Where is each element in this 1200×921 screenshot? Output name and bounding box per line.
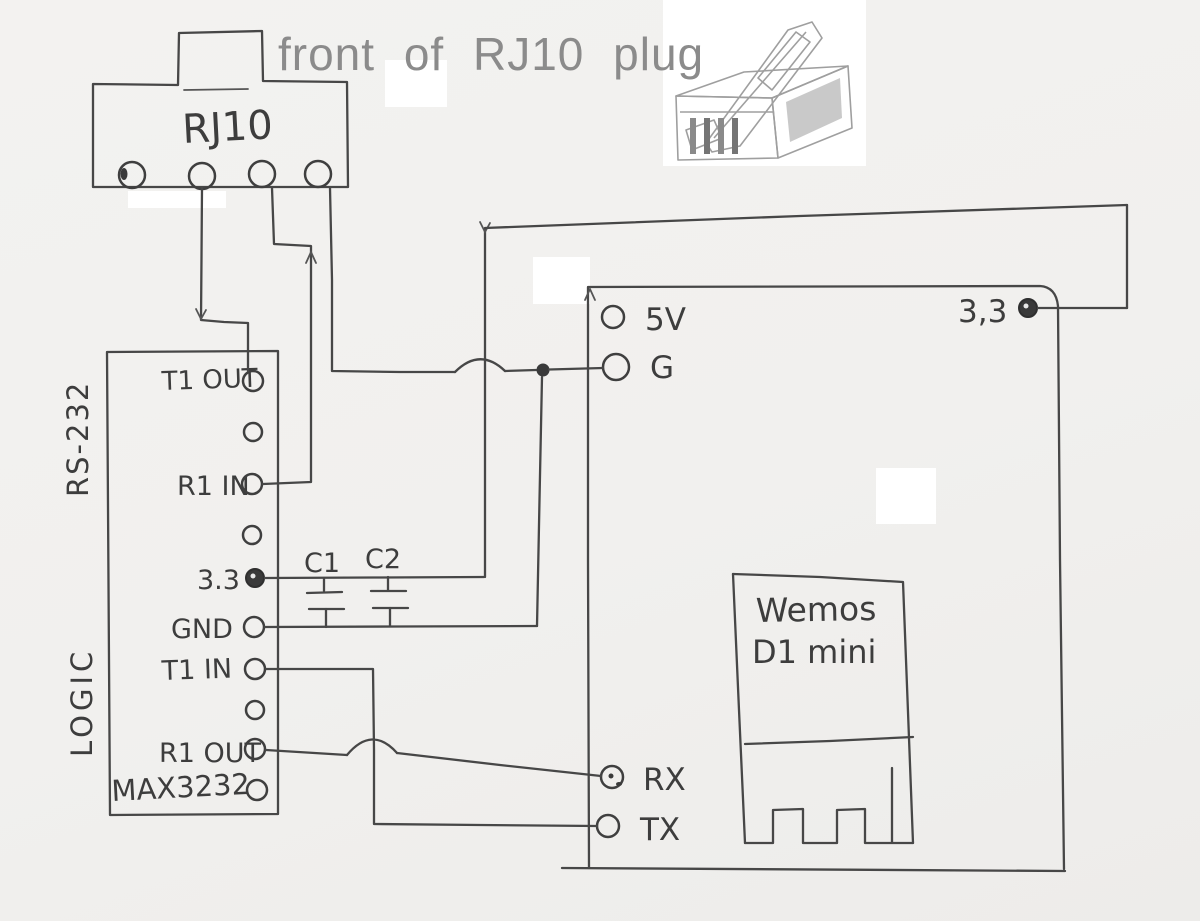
whiteout-patch [533, 257, 590, 304]
wemos-g-label: G [650, 350, 674, 386]
max3232-gnd-label: GND [171, 614, 233, 645]
max3232-pin-t1in [245, 659, 265, 679]
wire-junction-to-g [549, 368, 603, 370]
max3232-rs232-label: RS-232 [61, 381, 95, 497]
rj10-pin-2 [189, 163, 215, 189]
wemos-name-line1: Wemos [755, 589, 876, 630]
max3232-pin-nc2 [243, 526, 261, 544]
wires [196, 188, 1127, 826]
wire-hop-over-tx [347, 739, 397, 755]
wemos-bottom-edge [562, 868, 1065, 871]
wire-33-top [485, 205, 1127, 228]
max3232-module: RS-232 LOGIC T1 OUT R1 IN 3.3 GND T1 IN … [61, 351, 278, 815]
max3232-pin-nc1 [244, 423, 262, 441]
max3232-pin-nc3 [246, 701, 264, 719]
wemos-pin-33-highlight [1024, 304, 1029, 309]
wemos-tx-label: TX [639, 812, 680, 848]
max3232-33-label: 3.3 [197, 565, 240, 596]
max3232-logic-label: LOGIC [65, 648, 99, 757]
schematic-canvas: front of RJ10 plug RJ10 RS-232 LOGIC T1 … [0, 0, 1200, 921]
wire-rj10pin2-t1out [201, 188, 248, 371]
wemos-pin-33 [1019, 299, 1037, 317]
max3232-pin-33-highlight [251, 574, 256, 579]
capacitor-c2: C2 [365, 544, 408, 626]
rj10-pin-1-mark [121, 168, 128, 180]
wemos-pin-rx-mark [616, 782, 622, 786]
wire-hop-to-junction [505, 370, 536, 371]
rj10-pin-4 [305, 161, 331, 187]
max3232-pin-gnd [244, 617, 264, 637]
wemos-rx-label: RX [643, 762, 686, 798]
inner-box-castellation [745, 809, 913, 843]
wire-rj10pin4-ground [330, 188, 455, 372]
whiteout-patch [876, 468, 936, 524]
rj10-label: RJ10 [181, 102, 274, 153]
max3232-pin-33 [246, 569, 264, 587]
max3232-t1in-label: T1 IN [160, 654, 232, 687]
whiteout-patch [128, 191, 226, 208]
rj10-pin-3 [249, 161, 275, 187]
wemos-pin-5v [602, 306, 624, 328]
wemos-inner-module: Wemos D1 mini [733, 574, 913, 843]
wire-r1out-rx-right [397, 753, 601, 776]
wemos-5v-label: 5V [645, 302, 686, 338]
inner-box-divider [745, 737, 913, 744]
wire-t1in-tx [266, 669, 597, 826]
wemos-board: 5V G 3,3 RX TX Wemos D1 mini [562, 286, 1065, 871]
capacitor-c1: C1 [304, 548, 344, 627]
max3232-chip-label: MAX3232 [111, 767, 251, 808]
wemos-pin-rx-dot [609, 774, 614, 779]
max3232-r1in-label: R1 IN [177, 471, 250, 502]
wire-junction-to-gndrail [537, 377, 542, 626]
page-title: front of RJ10 plug [278, 28, 704, 80]
c2-label: C2 [365, 544, 401, 575]
wemos-33-label: 3,3 [958, 294, 1007, 330]
wemos-pin-tx [597, 815, 619, 837]
wemos-name-line2: D1 mini [752, 633, 876, 671]
c1-label: C1 [304, 548, 340, 579]
junction-dot [537, 364, 550, 377]
rj10-sketch-stroke [184, 89, 248, 90]
wire-rj10pin3-r1in [263, 188, 311, 484]
wire-33-rail [265, 577, 484, 578]
wire-hop-over-33 [455, 359, 505, 372]
inner-box-left [733, 574, 745, 843]
wire-gnd-rail [265, 626, 537, 627]
wemos-pin-g [603, 354, 629, 380]
rj10-plug-photo [663, 0, 866, 166]
